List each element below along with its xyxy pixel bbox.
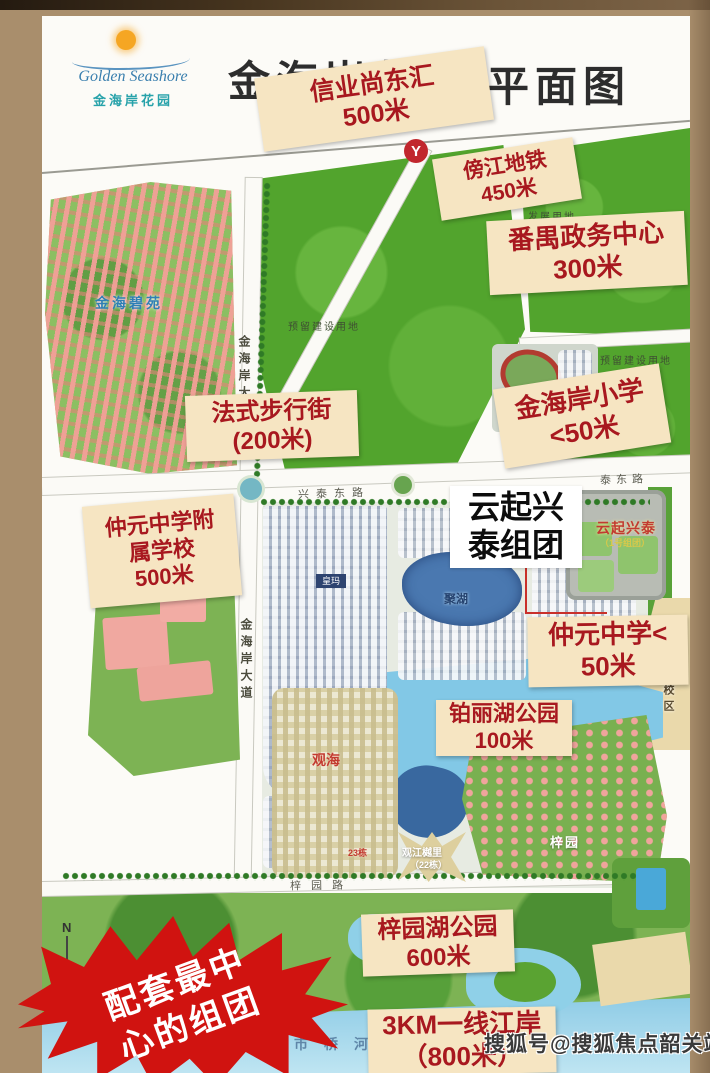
label-fuxiao: 仲元中学附 属学校 500米 — [82, 494, 242, 609]
label-yunqi-group: 云起兴 泰组团 — [450, 486, 582, 568]
map-page: Golden Seashore 金海岸花园 金海岸花 平面图 — [42, 16, 690, 1073]
estate-name-text: 金海碧苑 — [95, 293, 163, 313]
guanhai-neighborhood — [272, 688, 398, 878]
label-fashi-line2: (200米) — [232, 425, 313, 457]
road-label-taidong: 泰东路 — [600, 470, 649, 488]
road-label-ziyuan: 梓园路 — [290, 876, 353, 893]
huangma-chip: 皇玛 — [316, 574, 346, 588]
guanjiang-text: 观江樾里 — [402, 844, 442, 859]
riverbank-sand-south — [592, 932, 690, 1006]
road-label-jinhaian-2: 金海岸大道 — [238, 618, 255, 730]
yunqi-map-subtext: （1号组团） — [600, 536, 650, 549]
metro-icon: Y — [404, 139, 428, 163]
label-fashi-line1: 法式步行街 — [211, 395, 332, 428]
label-yunqi-line2: 泰组团 — [468, 527, 564, 565]
block23-text: 23栋 — [348, 846, 367, 859]
label-panyu-line2: 300米 — [552, 251, 623, 286]
label-panyu-gov: 番禺政务中心 300米 — [486, 211, 688, 295]
logo-text-en: Golden Seashore — [58, 68, 208, 86]
label-french-street: 法式步行街 (200米) — [185, 390, 359, 462]
label-bolihu-line2: 100米 — [475, 728, 534, 755]
site-plan-image: Golden Seashore 金海岸花园 金海岸花 平面图 — [0, 0, 710, 1073]
label-ziyuanhu-line2: 600米 — [406, 942, 471, 973]
yunqi-map-text: 云起兴泰 — [596, 518, 656, 538]
sun-icon — [116, 30, 136, 50]
ziyuan-text: 梓园 — [550, 832, 580, 851]
guanhai-text: 观海 — [312, 750, 340, 770]
label-bolihu-park: 铂丽湖公园 100米 — [436, 700, 572, 756]
left-campus-building-1 — [102, 614, 169, 670]
yunqi-pointer-line — [525, 560, 607, 614]
roundabout-west — [240, 478, 262, 500]
block22-text: （22栋） — [410, 858, 447, 871]
frame-right-shade — [688, 0, 710, 1073]
lake-juhu-text: 聚湖 — [444, 590, 468, 607]
logo-text-cn: 金海岸花园 — [58, 90, 208, 109]
reserved-land-text-1: 预留建设用地 — [288, 318, 360, 333]
label-ziyuanhu-line1: 梓园湖公园 — [377, 912, 498, 945]
golden-seashore-logo: Golden Seashore 金海岸花园 — [58, 28, 208, 120]
clubhouse-pool — [636, 868, 666, 910]
compass-north-label: N — [62, 920, 71, 935]
label-zhongyuan-line1: 仲元中学< — [548, 618, 668, 652]
label-ziyuanhu-park: 梓园湖公园 600米 — [361, 909, 515, 976]
compass-needle — [66, 936, 68, 962]
label-fuxiao-line3: 500米 — [134, 562, 195, 594]
roundabout-center — [394, 476, 412, 494]
label-bolihu-line1: 铂丽湖公园 — [449, 701, 559, 728]
road-label-xingtai: 兴泰东路 — [298, 484, 371, 503]
promo-starburst-text: 配套最中 心的组团 — [99, 939, 267, 1069]
label-yunqi-line1: 云起兴 — [468, 489, 564, 527]
metro-glyph: Y — [411, 143, 421, 160]
frame-top-edge — [0, 0, 710, 10]
seashore-wave-icon — [72, 50, 190, 70]
reserved-land-text-2: 预留建设用地 — [600, 352, 672, 367]
label-zhongyuan-line2: 50米 — [581, 651, 636, 684]
label-panyu-line1: 番禺政务中心 — [507, 217, 664, 257]
label-zhongyuan-school: 仲元中学< 50米 — [527, 615, 688, 688]
watermark: 搜狐号@搜狐焦点韶关站 — [484, 1028, 710, 1058]
page-title-right: 平面图 — [487, 53, 631, 114]
